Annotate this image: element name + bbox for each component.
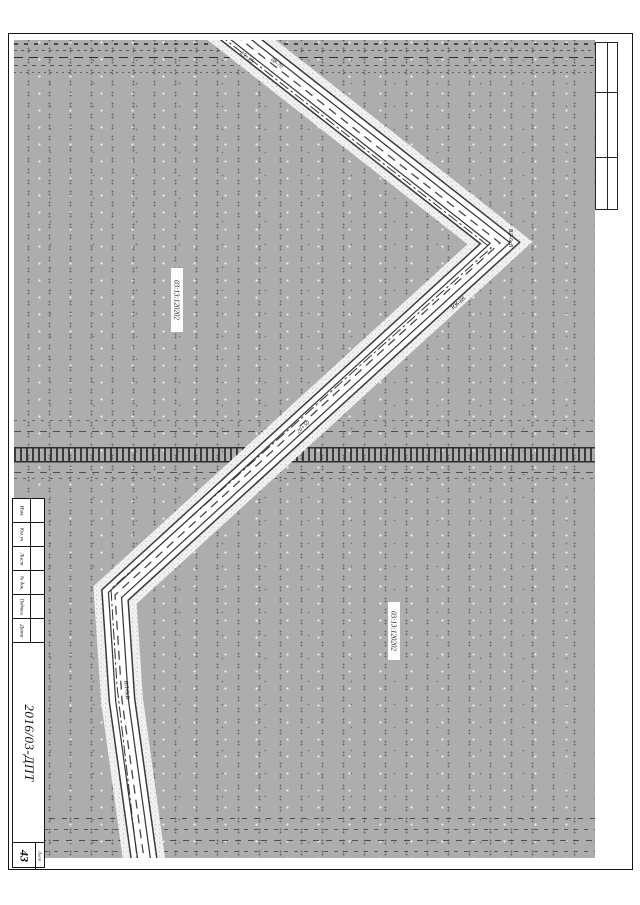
stamp-revision-row: Изм. <box>13 499 44 523</box>
stamp-divider <box>35 843 36 869</box>
scanned-drawing-page: 03:13:120202 03:13:120202 25+25 08-70 ВЛ… <box>0 0 640 905</box>
stamp-divider <box>30 595 31 618</box>
road-edge-inner <box>115 40 500 858</box>
map-field: 03:13:120202 03:13:120202 25+25 08-70 ВЛ… <box>14 40 595 858</box>
stamp-col-label: № док. <box>19 576 25 590</box>
road-lane <box>115 40 500 858</box>
stamp-divider <box>30 571 31 594</box>
stamp-revision-row: Дата <box>13 619 44 643</box>
road-carriageway <box>115 40 500 858</box>
stamp-col-label: Изм. <box>19 506 25 517</box>
stamp-revision-row: № док. <box>13 571 44 595</box>
title-stamp: Изм. Кол.уч. Лист № док. Подпись Дата 20… <box>12 498 45 868</box>
stamp-divider <box>30 619 31 642</box>
road-shoulder-band <box>115 40 500 858</box>
stamp-col-label: Кол.уч. <box>19 528 24 542</box>
stamp-revision-row: Лист <box>13 547 44 571</box>
margin-boxes <box>595 42 618 210</box>
sheet-number: 43 <box>17 850 32 862</box>
stamp-col-label: Лист <box>19 553 25 566</box>
sheet-label: Лист <box>38 851 43 861</box>
sheet-number-box: 43 Лист <box>13 843 44 869</box>
stamp-revision-row: Кол.уч. <box>13 523 44 547</box>
road-edge-outer <box>115 40 500 858</box>
margin-box-divider <box>607 43 608 209</box>
cadastral-number: 03:13:120202 <box>173 280 181 320</box>
cadastral-number: 03:13:120202 <box>390 611 398 651</box>
road-corridor-svg <box>14 40 595 858</box>
stamp-divider <box>30 499 31 522</box>
stamp-col-label: Дата <box>19 625 25 638</box>
project-code: 2016/03-ДПТ <box>21 704 37 781</box>
stamp-divider <box>30 547 31 570</box>
cadastral-parcel-label: 03:13:120202 <box>171 268 183 332</box>
cadastral-parcel-label: 03:13:120202 <box>388 602 400 660</box>
road-axis-dashed <box>115 40 500 858</box>
stamp-project-code-cell: 2016/03-ДПТ <box>13 643 44 843</box>
stamp-divider <box>30 523 31 546</box>
stamp-revision-row: Подпись <box>13 595 44 619</box>
stamp-col-label: Подпись <box>19 599 24 616</box>
road-label: ВЛ-6кВ <box>508 229 514 247</box>
